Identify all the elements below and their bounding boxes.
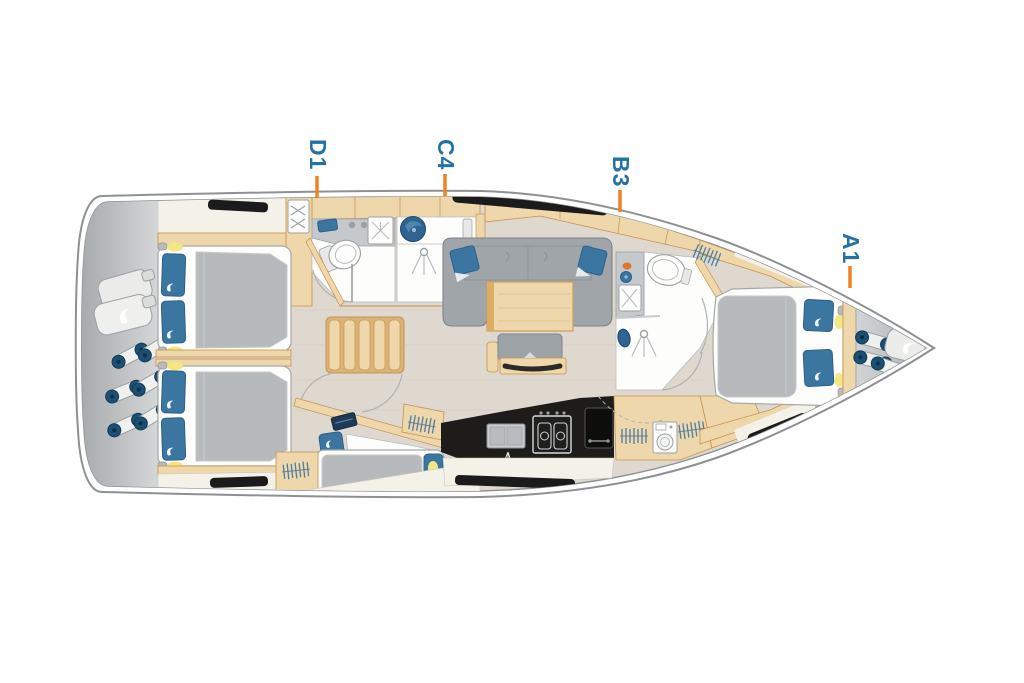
wardrobe-hanger-icon <box>288 200 309 233</box>
sink-icon <box>368 217 393 244</box>
sink-icon <box>619 285 641 311</box>
towel <box>317 219 337 233</box>
fridge-icon <box>585 408 613 448</box>
aft-cabin-top <box>158 196 312 356</box>
yacht-floorplan: D1 C4 B3 A1 <box>0 0 1024 683</box>
island-bed <box>713 286 845 406</box>
stern-deck <box>78 198 158 490</box>
double-bed <box>158 362 291 471</box>
washbasin-icon <box>401 217 426 242</box>
cabin-label-text: A1 <box>838 233 864 264</box>
aft-cabin-bottom <box>158 362 291 493</box>
floorplan-drawing: D1 C4 B3 A1 <box>0 0 1024 683</box>
soap-dish <box>623 263 632 270</box>
wardrobe <box>276 452 318 492</box>
stairs-icon <box>326 317 404 373</box>
cabin-label-a1: A1 <box>838 233 864 288</box>
cabin-label-text: B3 <box>608 156 634 187</box>
cabin-label-text: C4 <box>433 139 459 170</box>
salon-table <box>487 282 573 331</box>
stove-icon <box>533 411 571 453</box>
cabin-label-d1: D1 <box>305 139 331 198</box>
cabin-label-b3: B3 <box>608 156 634 212</box>
cabin-label-text: D1 <box>305 139 331 170</box>
double-bed <box>158 243 291 356</box>
cabin-label-c4: C4 <box>433 139 459 196</box>
washing-machine-icon <box>653 422 677 453</box>
window-icon <box>210 476 268 488</box>
